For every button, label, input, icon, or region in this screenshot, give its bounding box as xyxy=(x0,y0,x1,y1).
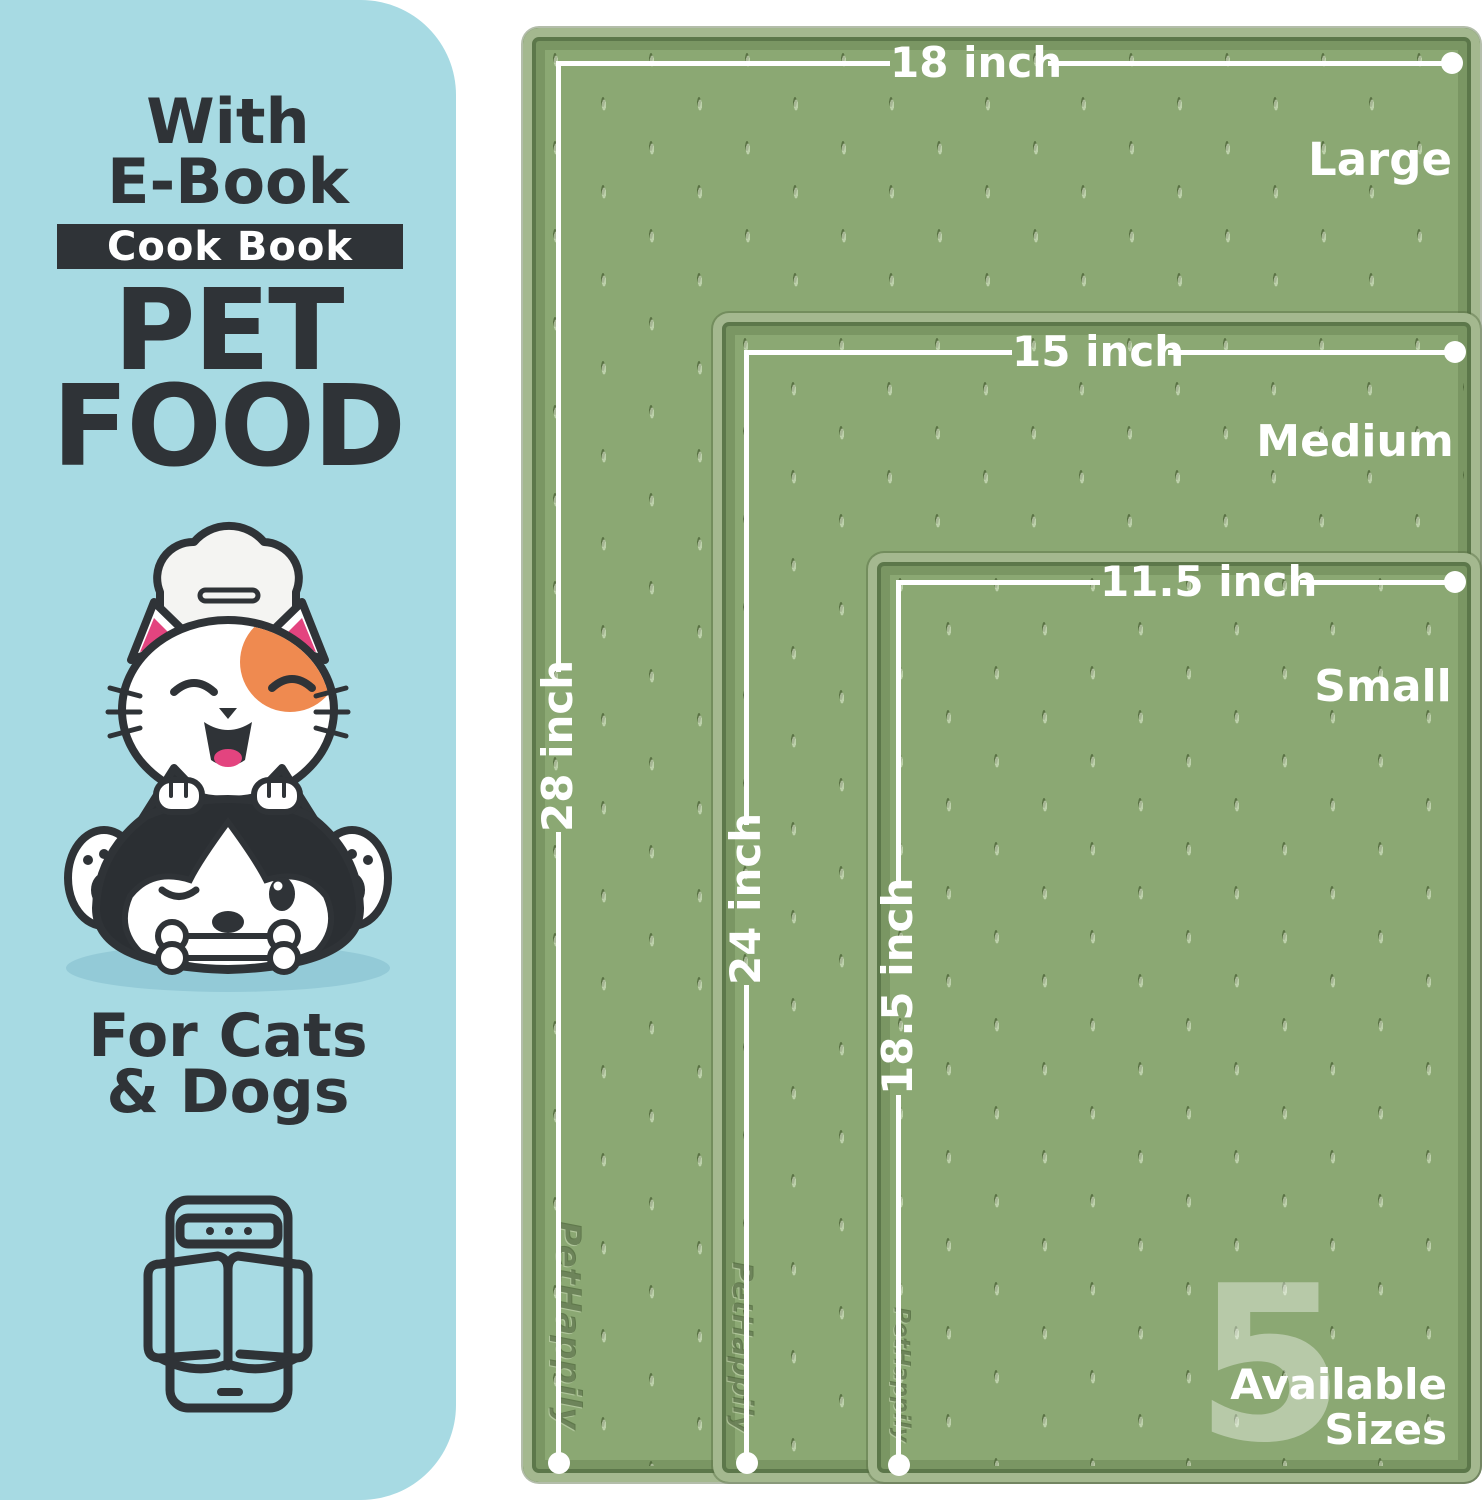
medium-width-endpoint-dot xyxy=(1444,341,1466,363)
medium-height-endpoint-dot xyxy=(736,1452,758,1474)
medium-size-name: Medium xyxy=(1255,416,1455,467)
small-width-line-left xyxy=(900,580,1100,585)
small-width-line-right xyxy=(1300,580,1455,585)
brand-emboss-small: PetHappily xyxy=(889,1300,914,1450)
ebook-icon xyxy=(138,1194,318,1416)
medium-width-line-right xyxy=(1168,350,1455,355)
small-width-endpoint-dot xyxy=(1444,571,1466,593)
medium-height-line-bottom xyxy=(744,985,749,1464)
large-width-endpoint-dot xyxy=(1441,52,1463,74)
info-panel: With E-Book Cook Book PET FOOD xyxy=(0,0,456,1500)
panel-header: With E-Book xyxy=(0,92,456,212)
cook-book-badge: Cook Book xyxy=(57,224,403,269)
small-height-line-bottom xyxy=(896,1095,901,1466)
chef-cat-dog-illustration xyxy=(28,470,428,998)
panel-header-line2: E-Book xyxy=(0,152,456,212)
large-height-endpoint-dot xyxy=(548,1452,570,1474)
panel-subtitle: For Cats & Dogs xyxy=(0,1008,456,1120)
product-size-diagram: With E-Book Cook Book PET FOOD xyxy=(0,0,1483,1500)
small-width-label: 11.5 inch xyxy=(1100,559,1300,605)
brand-emboss-large: PetHappily xyxy=(548,1200,588,1450)
large-size-name: Large xyxy=(1280,133,1480,186)
large-width-label: 18 inch xyxy=(890,40,1048,86)
small-height-label: 18.5 inch xyxy=(875,885,921,1095)
panel-subtitle-line1: For Cats xyxy=(0,1008,456,1064)
large-height-line-bottom xyxy=(556,832,561,1464)
small-size-name: Small xyxy=(1283,661,1483,712)
large-height-label: 28 inch xyxy=(535,672,581,832)
medium-height-line-top xyxy=(744,350,749,825)
available-sizes-label: Available Sizes xyxy=(1147,1362,1447,1452)
panel-title-line2: FOOD xyxy=(0,379,456,475)
large-height-line-top xyxy=(556,61,561,672)
large-width-line-left xyxy=(560,61,890,66)
small-height-endpoint-dot xyxy=(888,1454,910,1476)
large-width-line-right xyxy=(1048,61,1452,66)
panel-subtitle-line2: & Dogs xyxy=(0,1064,456,1120)
brand-emboss-medium: PetHappily xyxy=(727,1248,760,1448)
cook-book-badge-label: Cook Book xyxy=(107,224,353,270)
medium-height-label: 24 inch xyxy=(723,825,769,985)
available-sizes-line1: Available xyxy=(1147,1362,1447,1407)
available-sizes-line2: Sizes xyxy=(1147,1407,1447,1452)
small-height-line-top xyxy=(896,580,901,885)
medium-width-line-left xyxy=(746,350,1012,355)
panel-header-line1: With xyxy=(0,92,456,152)
panel-title: PET FOOD xyxy=(0,283,456,475)
medium-width-label: 15 inch xyxy=(1012,329,1168,375)
